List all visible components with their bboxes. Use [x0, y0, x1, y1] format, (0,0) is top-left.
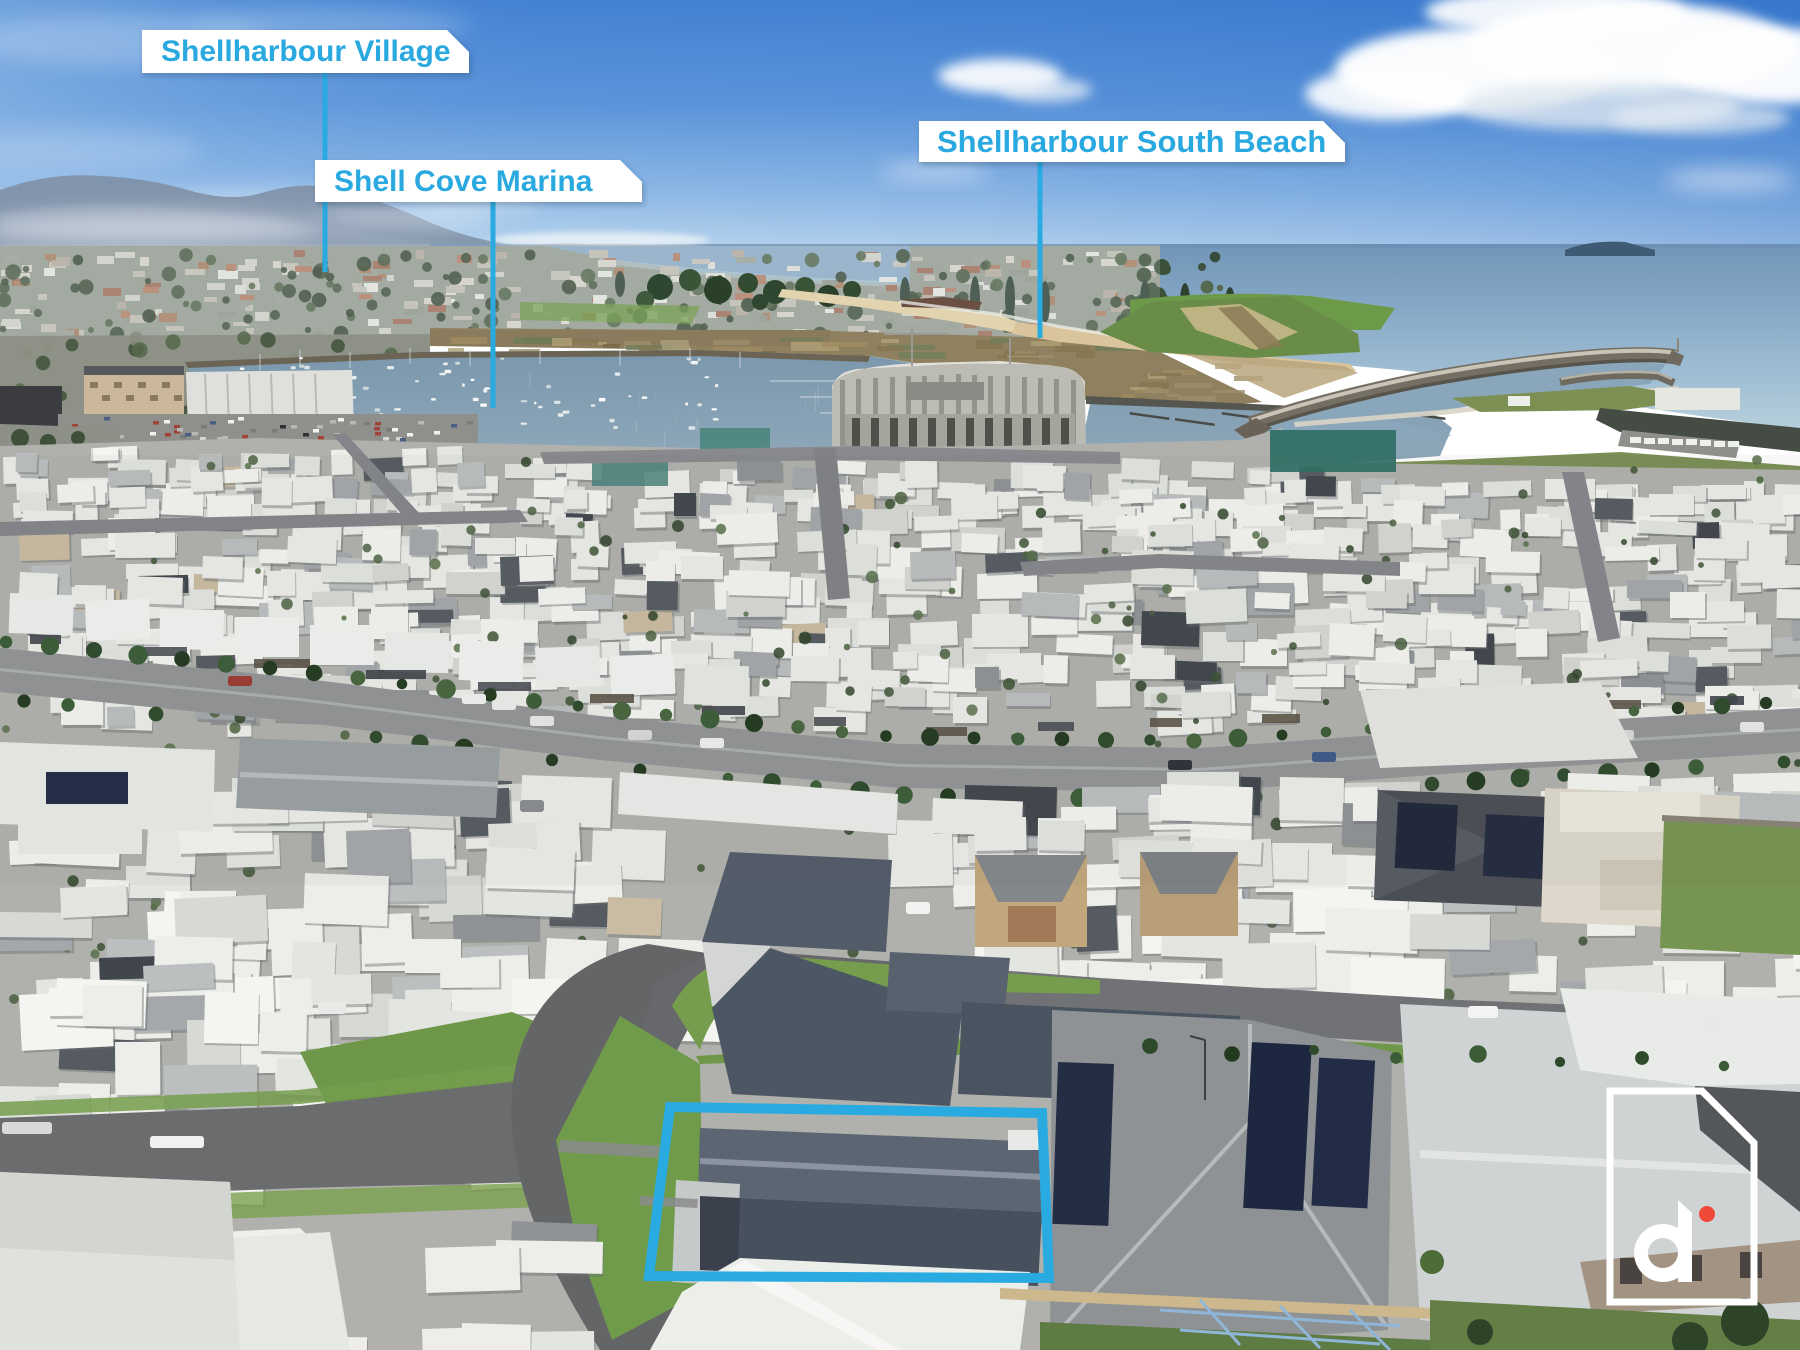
svg-text:Shell Cove Marina: Shell Cove Marina	[334, 165, 593, 198]
svg-text:Shellharbour South Beach: Shellharbour South Beach	[937, 124, 1326, 159]
svg-text:Shellharbour Village: Shellharbour Village	[161, 35, 451, 68]
